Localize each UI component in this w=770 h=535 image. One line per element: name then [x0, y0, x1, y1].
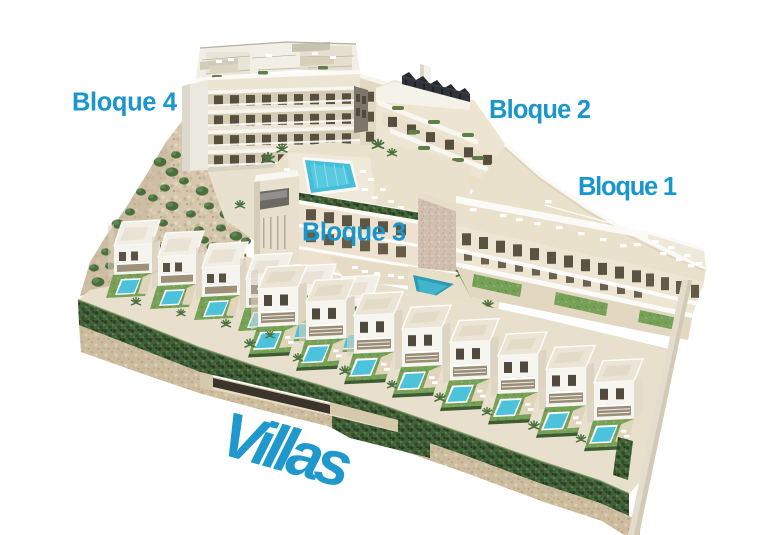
svg-text:Bloque 4: Bloque 4	[72, 89, 178, 117]
svg-text:Bloque 3: Bloque 3	[302, 218, 406, 246]
svg-text:Bloque 2: Bloque 2	[489, 96, 591, 124]
svg-text:Bloque 1: Bloque 1	[578, 173, 677, 201]
